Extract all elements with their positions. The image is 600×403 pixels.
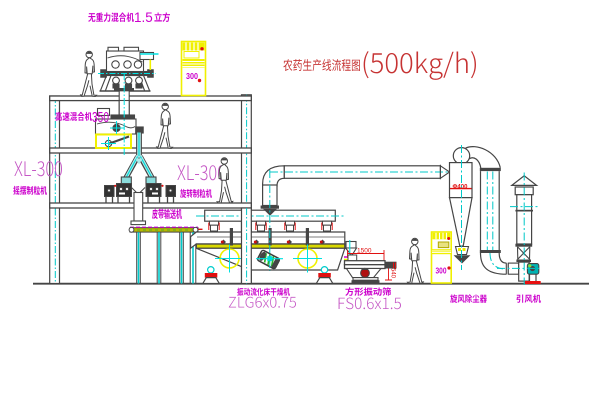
svg-text:1.5: 1.5 [134,10,153,25]
svg-text:Φ400: Φ400 [453,185,469,191]
svg-text:540: 540 [390,268,396,279]
svg-text:300: 300 [436,266,447,276]
svg-text:350: 350 [92,110,109,126]
svg-text:1500: 1500 [357,248,372,255]
svg-text:300: 300 [186,71,198,81]
